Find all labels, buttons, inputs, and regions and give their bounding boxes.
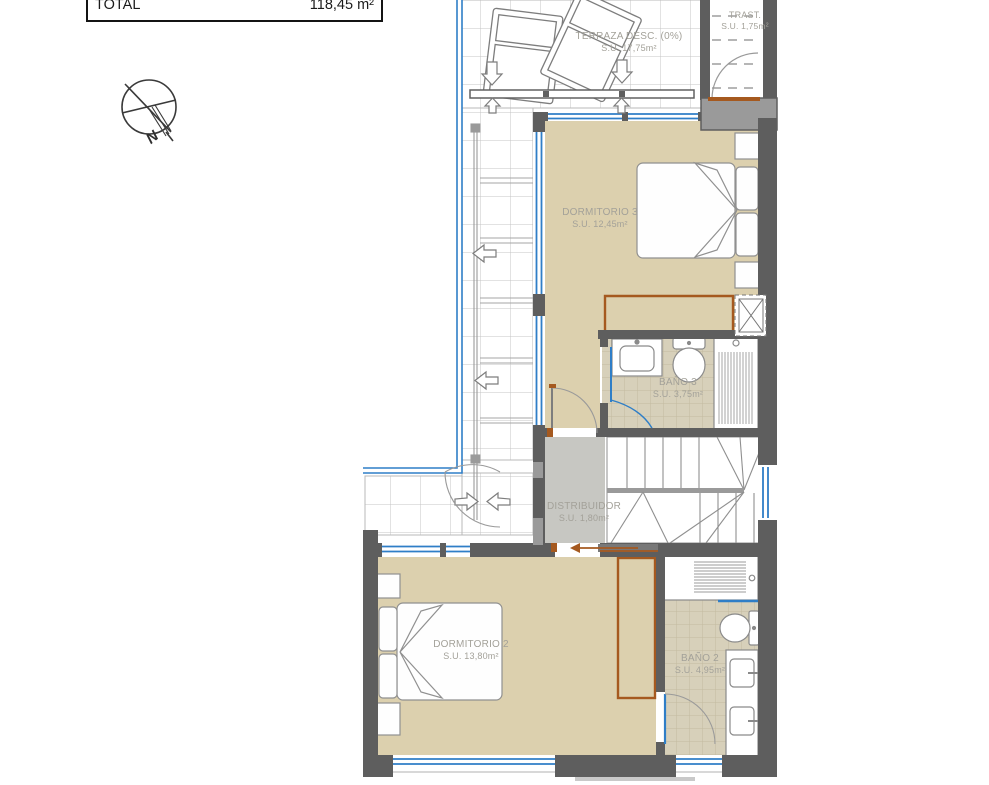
total-area-legend: TOTAL 118,45 m² [86, 0, 383, 22]
room-label-dormitorio3: DORMITORIO 3 S.U. 12,45m² [520, 207, 680, 229]
total-value: 118,45 m² [310, 0, 374, 13]
sink-bano3 [612, 339, 662, 376]
room-label-distribuidor: DISTRIBUIDOR S.U. 1,80m² [523, 501, 645, 523]
toilet-bano3 [673, 337, 705, 382]
ventilation-shaft [735, 295, 766, 336]
room-label-dormitorio2: DORMITORIO 2 S.U. 13,80m² [391, 639, 551, 661]
sliding-door-dormitorio2 [551, 543, 658, 553]
room-label-bano2: BAÑO 2 S.U. 4,95m² [640, 653, 760, 675]
staircase [607, 437, 763, 543]
total-label: TOTAL [95, 0, 140, 13]
room-label-bano3: BAÑO 3 S.U. 3,75m² [618, 377, 738, 399]
room-label-terraza: TERRAZA DESC. (0%) S.U. 17,75m² [549, 31, 709, 53]
floorplan-drawing [0, 0, 989, 785]
shower-bano2 [662, 556, 758, 600]
drainage-channel [470, 90, 694, 98]
floorplan-page: TOTAL 118,45 m² N TERRAZA DESC. (0%) S.U… [0, 0, 989, 785]
terrace-railing [363, 0, 462, 473]
trastero-threshold [708, 97, 760, 101]
room-label-trastero: TRAST. S.U. 1,75m² [700, 10, 790, 31]
